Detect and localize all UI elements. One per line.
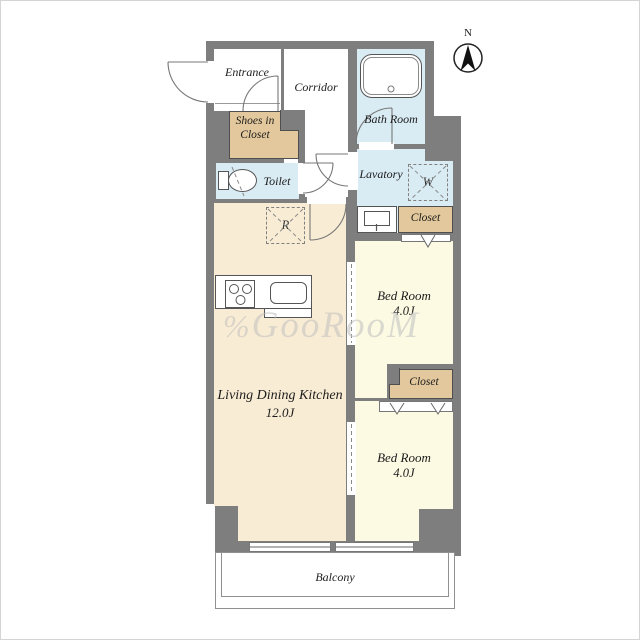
ldk-name: Living Dining Kitchen [214,388,346,405]
bathtub [360,54,422,98]
lavatory-label: Lavatory [351,167,411,181]
balcony-label: Balcony [221,570,449,584]
ldk-window [249,542,331,552]
washing-machine-label: W [423,175,433,190]
bathtub-inner-rim [363,57,419,95]
room-ldk [214,203,346,506]
corridor-label: Corridor [282,80,350,94]
watermark-text: GooRooM [252,305,420,346]
refrigerator-space: R [266,207,305,244]
closet-upper-label: Closet [398,212,453,226]
north-arrow-icon [454,44,482,72]
bath-room-label: Bath Room [353,112,429,126]
refrigerator-label: R [282,218,290,233]
bedroom2-label: Bed Room 4.0J [355,450,453,481]
shoes-in-closet-label: Shoes in Closet [227,115,283,143]
room-ldk-lower [238,506,346,541]
ldk-door-gap [307,195,346,204]
closet-lower-label: Closet [395,376,453,390]
room-bedroom1-ext [355,364,387,398]
entrance-step-line [215,103,280,104]
washing-machine-space: W [408,164,448,201]
bedroom1-name: Bed Room [355,288,453,304]
kitchen-sink [270,282,307,304]
watermark: %GooRooM [223,304,420,347]
wall-notch-bottom-left [206,504,215,556]
ldk-label: Living Dining Kitchen 12.0J [214,388,346,420]
room-entrance [214,49,281,111]
north-label: N [460,27,476,40]
closet-lower-door-strip [379,401,453,412]
entrance-label: Entrance [211,65,283,79]
bath-door-gap [359,142,394,150]
shoes-in-closet-line1: Shoes in [227,115,283,129]
bedroom2-size: 4.0J [355,466,453,481]
floor-plan: W R [0,0,640,640]
bedroom2-window [335,542,414,552]
washbasin-bowl [364,211,390,226]
watermark-logo: % [223,308,252,344]
room-bedroom2-ext [355,509,419,541]
ldk-size: 12.0J [214,405,346,421]
shoes-in-closet-line2: Closet [227,129,283,143]
closet-upper-door-strip [401,234,451,242]
toilet-label: Toilet [253,174,301,188]
bedroom2-name: Bed Room [355,450,453,466]
